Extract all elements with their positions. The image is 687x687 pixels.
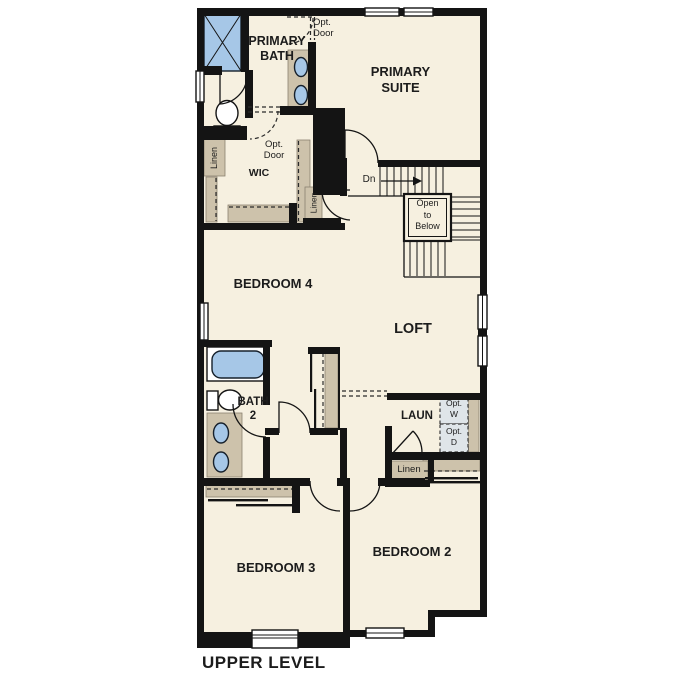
label-linen-laundry: Linen [390,464,428,475]
label-laundry: LAUN [394,410,440,424]
sink [214,423,229,443]
label-stairs-down: Dn [358,174,380,186]
label-primary-bath: PRIMARY BATH [232,34,322,64]
label-opt-door-upper: Opt. Door [313,17,349,40]
label-loft: LOFT [383,321,443,338]
label-bedroom-4: BEDROOM 4 [213,276,333,292]
label-opt-door-wic: Opt. Door [254,139,294,162]
label-upper-level: UPPER LEVEL [202,653,382,673]
sink [295,86,308,105]
floorplan-drawing [0,0,687,687]
toilet-primary [216,101,238,126]
label-opt-washer: Opt. W [440,398,468,420]
label-wic: WIC [242,167,276,180]
window [252,630,298,648]
label-linen-hall: Linen [305,187,322,219]
label-primary-suite: PRIMARY SUITE [358,64,443,95]
bedroom4-closet-shelf [325,352,338,428]
label-linen-wic: Linen [204,139,225,176]
label-open-to-below: Open to Below [404,198,451,233]
floorplan-page: PRIMARY BATH PRIMARY SUITE Opt. Door Opt… [0,0,687,687]
sink [214,452,229,472]
label-bath-2: BATH 2 [234,396,272,424]
label-bedroom-2: BEDROOM 2 [355,544,469,560]
label-bedroom-3: BEDROOM 3 [214,560,338,576]
bathtub [212,351,264,378]
label-opt-dryer: Opt. D [440,426,468,448]
